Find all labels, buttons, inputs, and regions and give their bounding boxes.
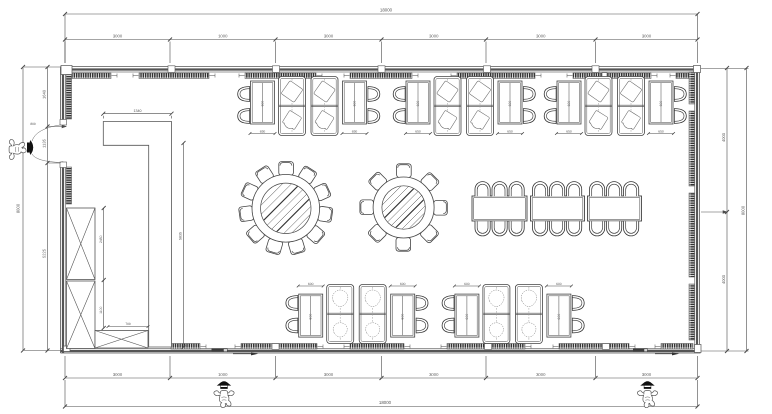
svg-text:800: 800 [30,122,36,126]
svg-text:5225: 5225 [42,248,47,258]
svg-text:650: 650 [260,130,266,134]
svg-text:650: 650 [566,130,572,134]
svg-text:1640: 1640 [42,89,47,99]
svg-text:3000: 3000 [536,372,546,377]
svg-text:3000: 3000 [113,34,123,39]
svg-text:1000: 1000 [218,34,228,39]
svg-text:1340: 1340 [134,109,142,113]
svg-text:3000: 3000 [113,372,123,377]
svg-text:3000: 3000 [429,34,439,39]
svg-text:5835: 5835 [179,232,183,240]
svg-text:1100: 1100 [99,306,103,313]
svg-text:650: 650 [658,130,664,134]
svg-text:650: 650 [507,130,513,134]
svg-text:3000: 3000 [324,372,334,377]
svg-text:4000: 4000 [721,132,726,142]
svg-text:650: 650 [415,130,421,134]
svg-text:8000: 8000 [741,205,746,215]
svg-text:18000: 18000 [379,400,392,405]
svg-text:3000: 3000 [324,34,334,39]
svg-text:1000: 1000 [218,372,228,377]
svg-text:600: 600 [400,282,406,286]
svg-text:8000: 8000 [16,203,21,213]
svg-text:600: 600 [556,282,562,286]
svg-text:3000: 3000 [429,372,439,377]
svg-text:600: 600 [308,282,314,286]
svg-text:700: 700 [125,322,131,326]
svg-text:3000: 3000 [536,34,546,39]
svg-text:2450: 2450 [99,235,103,243]
svg-text:3000: 3000 [642,34,652,39]
svg-text:650: 650 [352,130,358,134]
svg-text:1135: 1135 [42,138,47,147]
svg-text:18000: 18000 [380,8,393,13]
svg-text:3000: 3000 [642,372,652,377]
svg-text:4000: 4000 [721,274,726,284]
svg-text:600: 600 [464,282,470,286]
